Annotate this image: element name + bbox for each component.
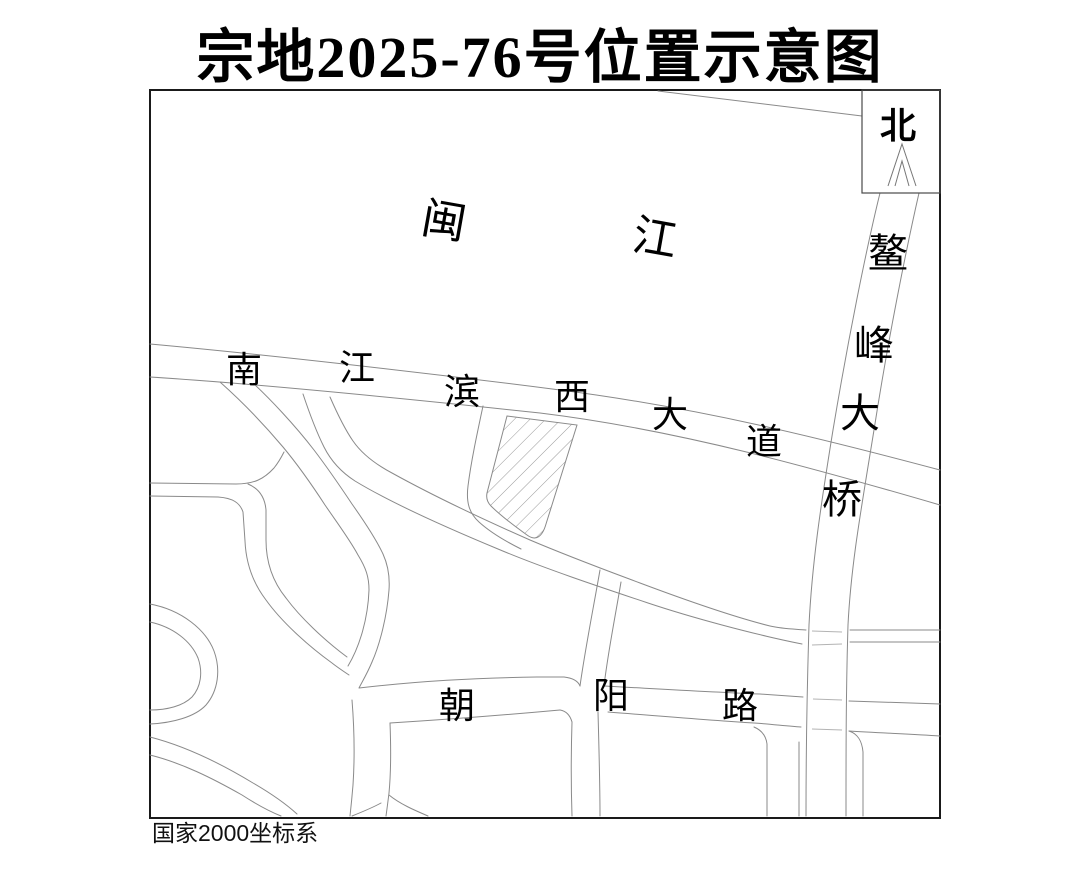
coordinate-system-note: 国家2000坐标系 xyxy=(152,820,318,846)
road-char: 道 xyxy=(746,422,782,462)
bridge-char: 鳌 xyxy=(868,231,908,276)
road-char: 阳 xyxy=(593,676,629,716)
road-south-from-junction xyxy=(350,700,428,816)
road-bottom-left-diagonal xyxy=(150,737,297,816)
page-title: 宗地2025-76号位置示意图 xyxy=(196,25,883,90)
north-arrow-icon xyxy=(888,144,916,186)
road-loop-block xyxy=(150,604,218,724)
road-left-block xyxy=(150,452,349,675)
bridge-char: 大 xyxy=(840,391,880,436)
north-indicator: 北 xyxy=(862,90,940,193)
location-map-canvas: 宗地2025-76号位置示意图 xyxy=(0,0,1080,878)
road-char: 路 xyxy=(722,686,758,726)
river-label: 闽 江 xyxy=(418,194,681,267)
bridge-char: 峰 xyxy=(854,323,894,368)
bridge-char: 桥 xyxy=(822,477,862,522)
river-char: 江 xyxy=(629,211,681,267)
north-label: 北 xyxy=(880,106,916,146)
road-char: 朝 xyxy=(439,686,475,726)
shoreline xyxy=(658,91,862,116)
road-char: 西 xyxy=(554,377,590,417)
river-char: 闽 xyxy=(418,194,470,250)
parcel-location-sketch: 宗地2025-76号位置示意图 xyxy=(0,0,1080,878)
road-char: 南 xyxy=(226,350,262,390)
road-char: 大 xyxy=(652,395,688,435)
road-southwest-branch xyxy=(220,382,389,666)
road-char: 滨 xyxy=(444,372,480,412)
bridge-label: 鳌 峰 大 桥 xyxy=(822,231,908,522)
road-char: 江 xyxy=(339,348,375,388)
parcel-hatched-area xyxy=(487,416,577,538)
